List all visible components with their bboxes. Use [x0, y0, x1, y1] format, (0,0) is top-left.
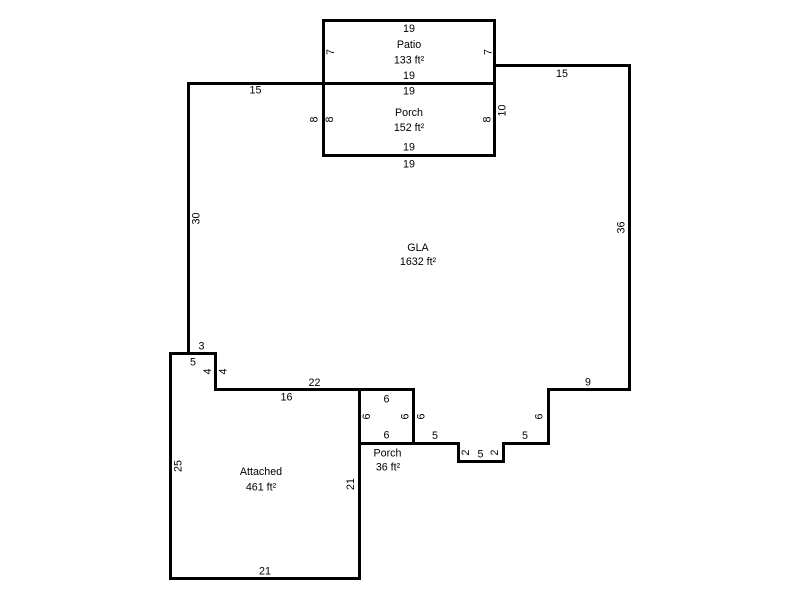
- svg-text:6: 6: [533, 413, 545, 419]
- svg-text:5: 5: [522, 430, 528, 442]
- svg-text:16: 16: [281, 391, 293, 403]
- svg-text:7: 7: [325, 49, 337, 55]
- svg-text:5: 5: [432, 430, 438, 442]
- svg-text:15: 15: [250, 84, 262, 96]
- svg-text:19: 19: [403, 141, 415, 153]
- svg-text:5: 5: [190, 356, 196, 368]
- svg-text:19: 19: [403, 70, 415, 82]
- svg-text:5: 5: [478, 448, 484, 460]
- svg-text:6: 6: [416, 413, 428, 419]
- svg-text:7: 7: [483, 49, 495, 55]
- svg-text:6: 6: [384, 429, 390, 441]
- svg-text:15: 15: [556, 68, 568, 80]
- svg-text:19: 19: [403, 85, 415, 97]
- svg-text:21: 21: [345, 478, 357, 490]
- svg-text:25: 25: [173, 460, 185, 472]
- svg-text:152 ft²: 152 ft²: [394, 122, 425, 134]
- svg-text:3: 3: [199, 340, 205, 352]
- svg-text:8: 8: [481, 116, 493, 122]
- svg-text:19: 19: [403, 158, 415, 170]
- svg-text:4: 4: [202, 368, 214, 374]
- svg-text:19: 19: [403, 23, 415, 35]
- svg-text:22: 22: [309, 377, 321, 389]
- svg-text:GLA: GLA: [407, 242, 429, 254]
- svg-text:9: 9: [585, 376, 591, 388]
- svg-text:30: 30: [191, 213, 203, 225]
- svg-text:Porch: Porch: [395, 107, 423, 119]
- svg-text:8: 8: [324, 116, 336, 122]
- svg-text:21: 21: [259, 565, 271, 577]
- svg-text:36 ft²: 36 ft²: [376, 461, 401, 473]
- svg-text:10: 10: [496, 105, 508, 117]
- svg-text:8: 8: [308, 116, 320, 122]
- svg-text:2: 2: [489, 449, 501, 455]
- svg-text:Patio: Patio: [397, 39, 421, 51]
- svg-text:36: 36: [615, 222, 627, 234]
- svg-text:1632 ft²: 1632 ft²: [400, 256, 437, 268]
- svg-text:6: 6: [361, 413, 373, 419]
- svg-text:4: 4: [217, 368, 229, 374]
- svg-text:133 ft²: 133 ft²: [394, 54, 425, 66]
- svg-text:Porch: Porch: [374, 447, 402, 459]
- svg-text:6: 6: [384, 393, 390, 405]
- svg-text:461 ft²: 461 ft²: [246, 481, 277, 493]
- svg-text:2: 2: [460, 449, 472, 455]
- svg-text:Attached: Attached: [240, 466, 282, 478]
- svg-text:6: 6: [399, 413, 411, 419]
